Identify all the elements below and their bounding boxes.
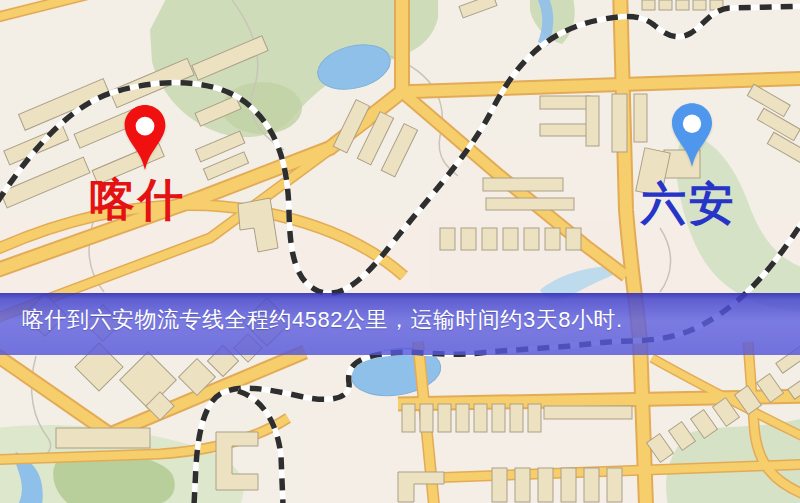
map-canvas[interactable]: 喀什 六安 喀什到六安物流专线全程约4582公里，运输时间约3天8小时. <box>0 0 800 503</box>
route-info-text: 喀什到六安物流专线全程约4582公里，运输时间约3天8小时. <box>22 305 623 335</box>
destination-marker[interactable] <box>668 102 716 168</box>
origin-pin-icon <box>121 103 169 172</box>
destination-pin-icon <box>668 102 716 168</box>
origin-marker[interactable] <box>121 103 169 172</box>
map-tiles[interactable] <box>0 0 800 503</box>
route-info-banner: 喀什到六安物流专线全程约4582公里，运输时间约3天8小时. <box>0 293 800 355</box>
origin-city-label: 喀什 <box>90 177 186 222</box>
destination-city-label: 六安 <box>641 181 737 226</box>
